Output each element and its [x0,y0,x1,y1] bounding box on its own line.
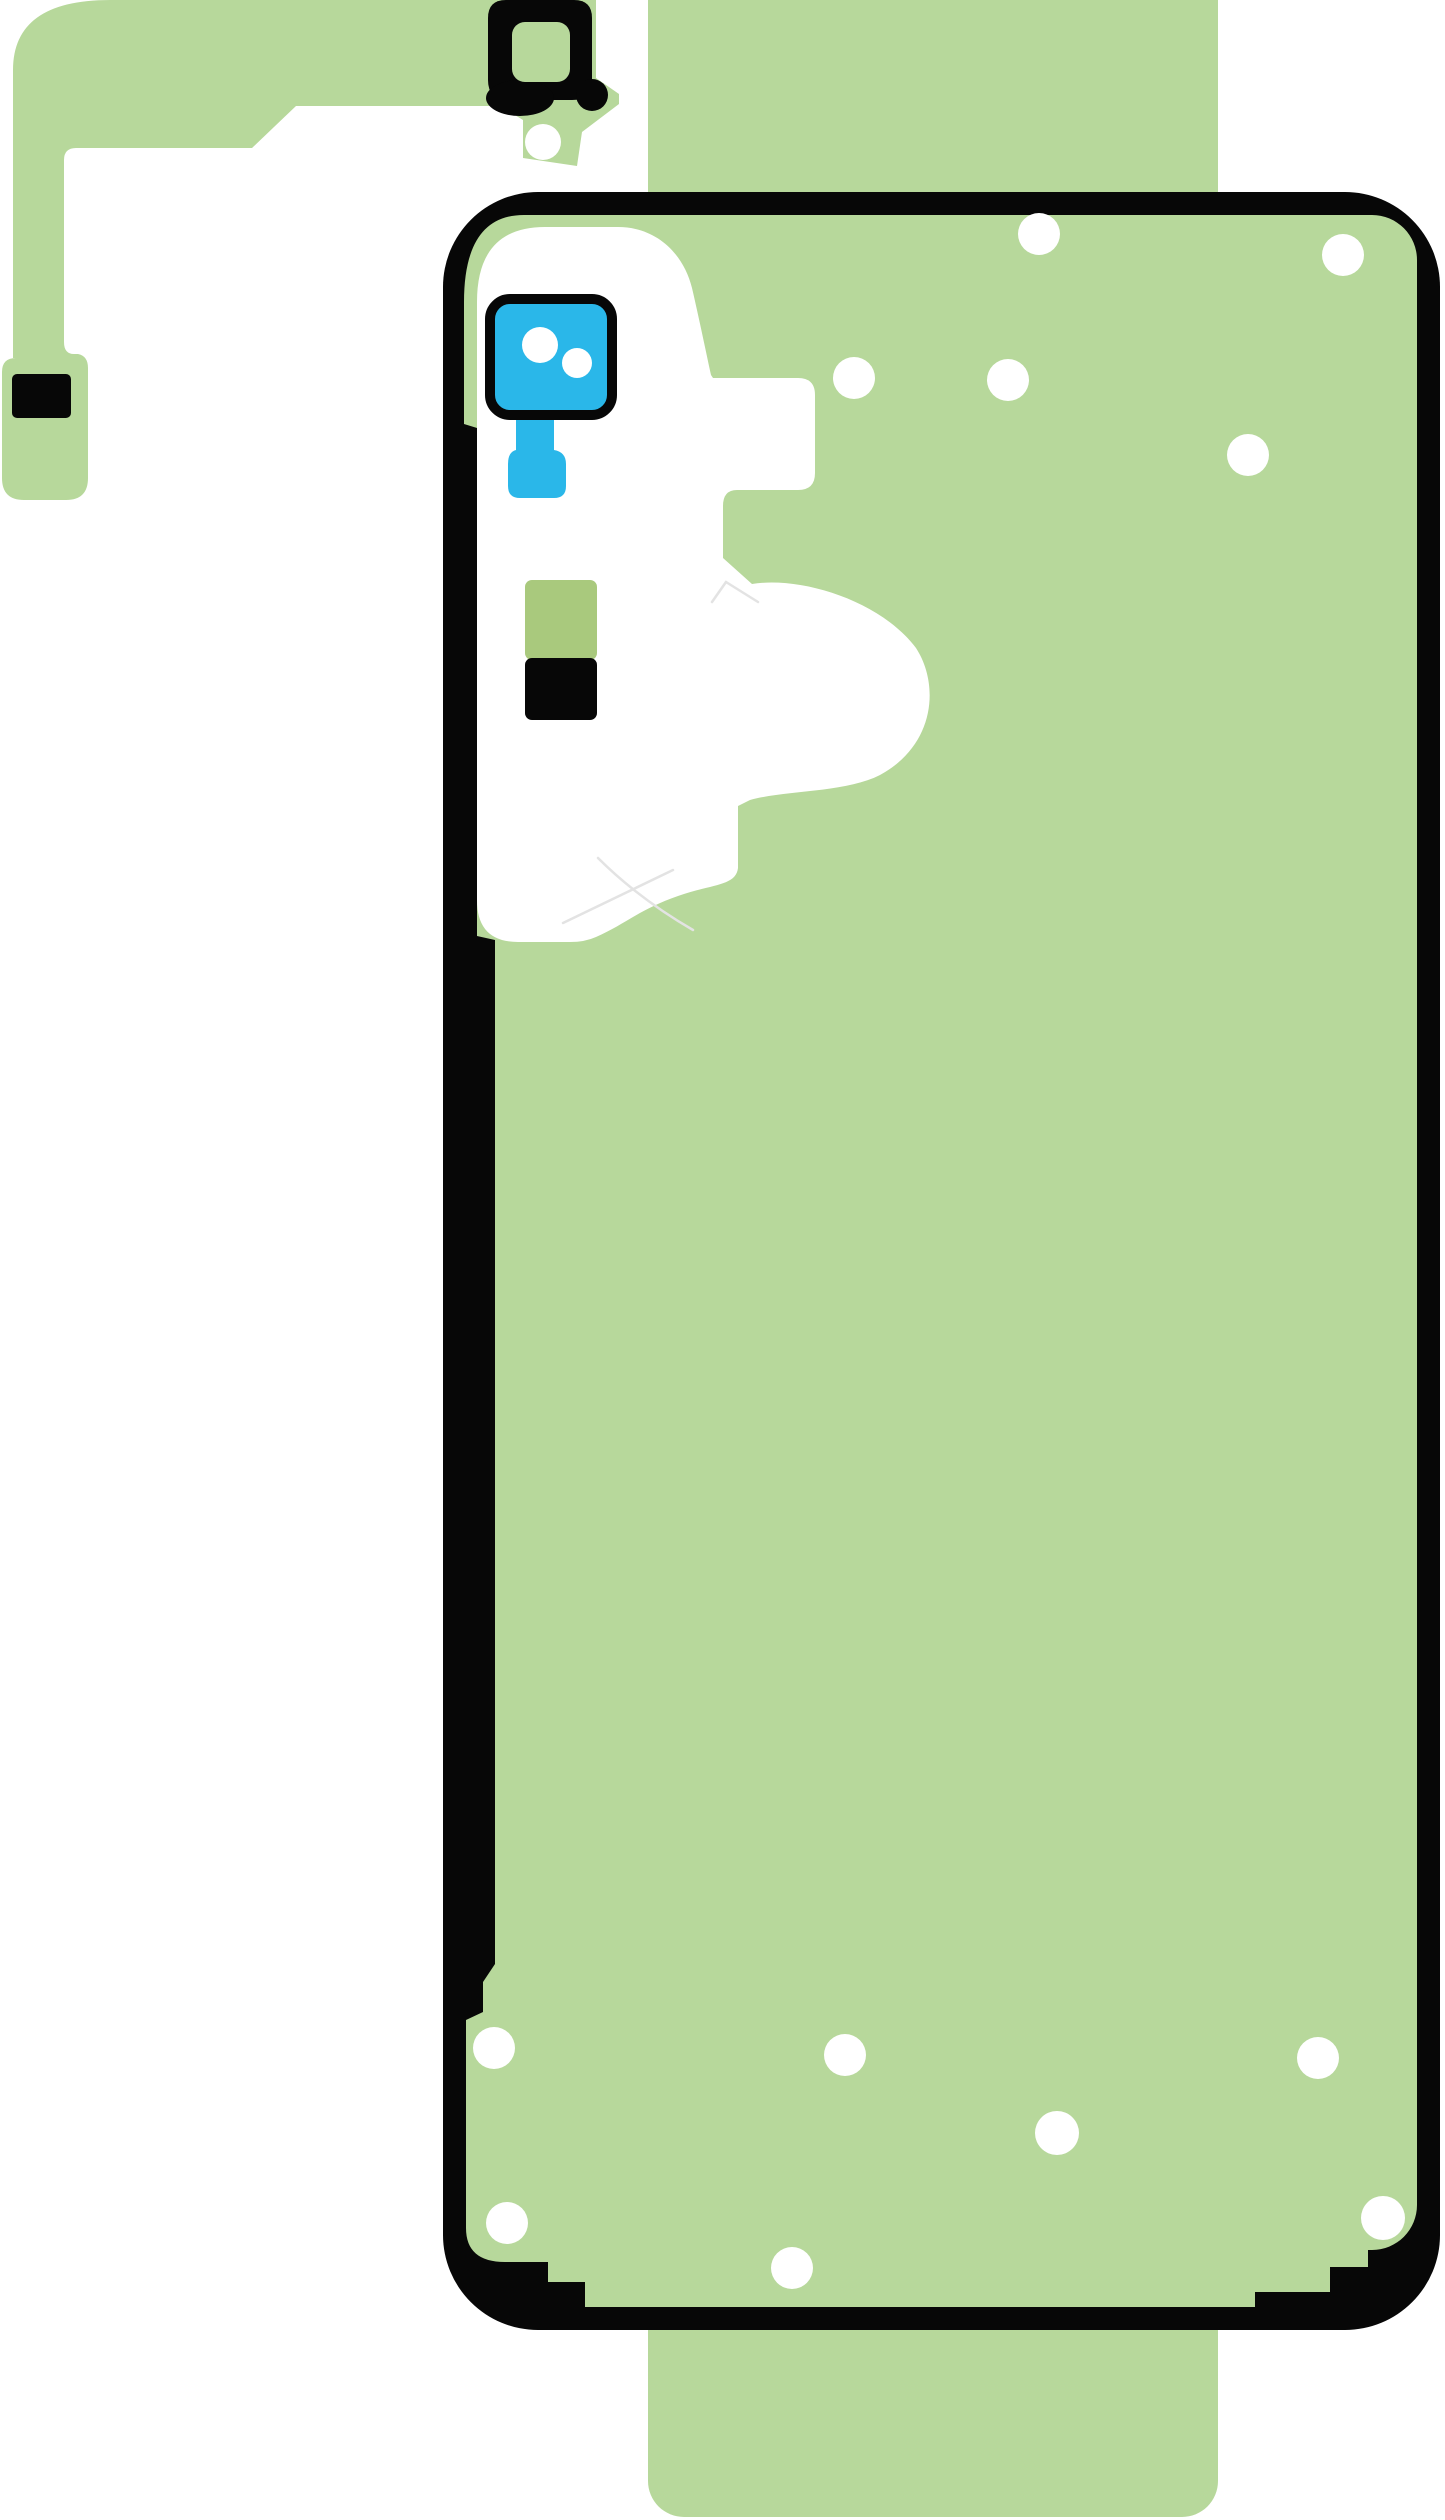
hole [562,348,592,378]
camera-ring-adhesive [486,0,608,116]
camera-ring-tab [576,79,608,111]
hole [473,2027,515,2069]
battery-pad-green [525,580,597,660]
flex-hole-group [525,124,561,160]
hole [525,124,561,160]
hole [833,357,875,399]
adhesive-set-illustration [0,0,1445,2520]
hole [987,359,1029,401]
product-image [0,0,1445,2520]
hole [824,2034,866,2076]
hole [522,327,558,363]
hole [1227,434,1269,476]
flex-contact-pad [12,374,71,418]
camera-ring-lobe [486,80,554,116]
battery-pad-black [525,658,597,720]
hole [1297,2037,1339,2079]
hole [1322,234,1364,276]
hole [486,2202,528,2244]
camera-ring-cutout [512,22,570,82]
hole [1361,2196,1405,2240]
hole [771,2247,813,2289]
hole [1035,2111,1079,2155]
hole [1018,213,1060,255]
